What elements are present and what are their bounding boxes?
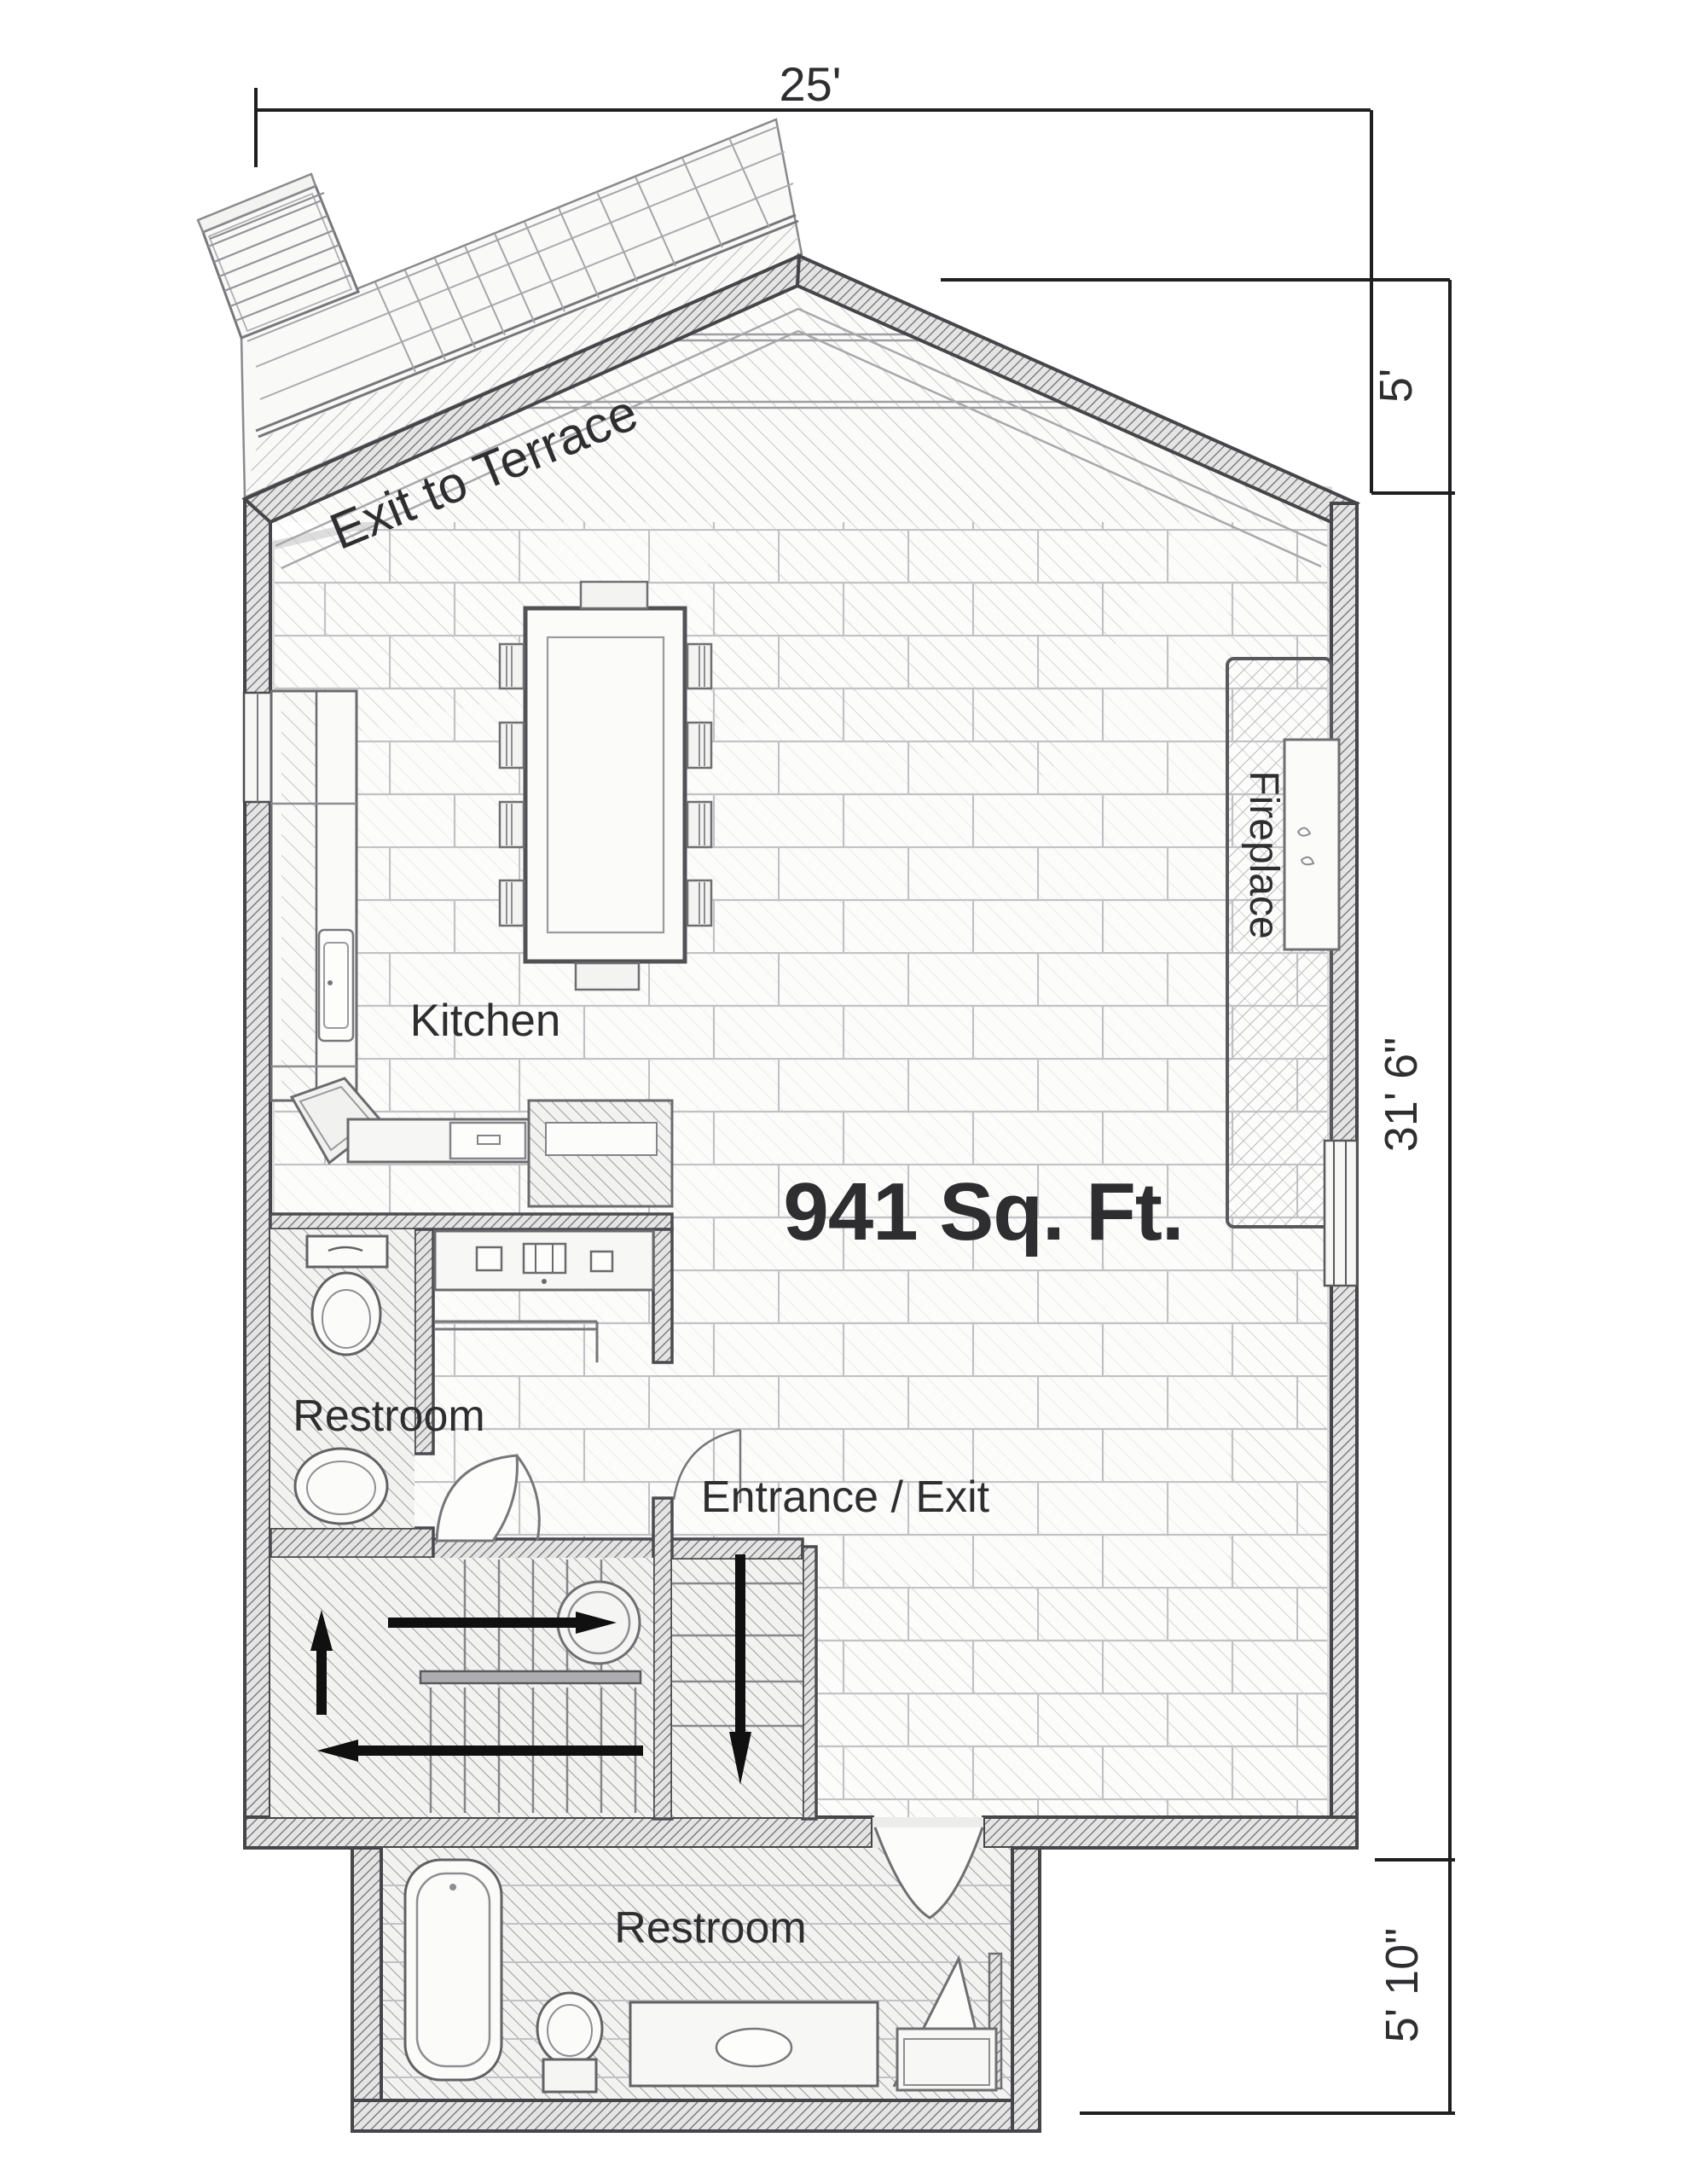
svg-text:Fireplace: Fireplace [1241, 770, 1286, 938]
svg-text:Kitchen: Kitchen [410, 996, 561, 1046]
svg-text:941 Sq. Ft.: 941 Sq. Ft. [783, 1166, 1183, 1258]
svg-text:31' 6": 31' 6" [1376, 1037, 1427, 1153]
svg-text:Restroom: Restroom [614, 1903, 806, 1953]
svg-text:Entrance / Exit: Entrance / Exit [701, 1472, 990, 1522]
svg-text:5' 10": 5' 10" [1377, 1928, 1428, 2043]
svg-text:5': 5' [1371, 369, 1422, 403]
svg-text:25': 25' [780, 57, 842, 111]
svg-text:Restroom: Restroom [293, 1391, 484, 1441]
